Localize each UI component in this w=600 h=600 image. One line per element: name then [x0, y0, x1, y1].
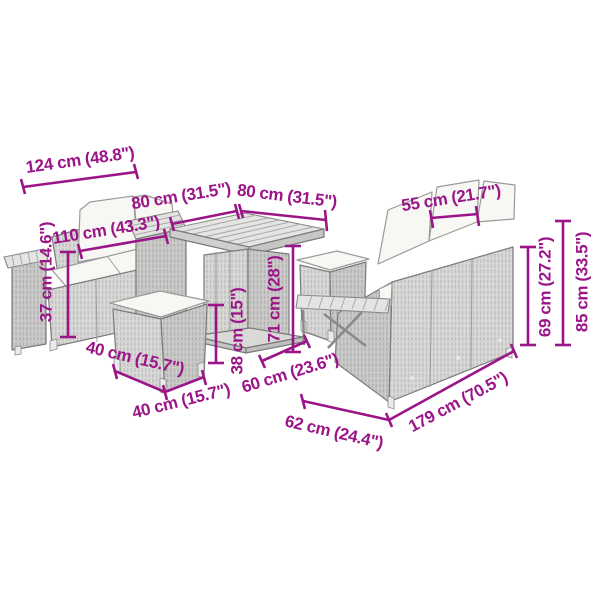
shelf-post	[303, 310, 304, 345]
dim-label-60: 60 cm (23.6")	[239, 349, 340, 396]
sofa-foot	[15, 346, 21, 355]
dim-label-38: 38 cm (15")	[228, 288, 247, 375]
sofa-foot	[50, 339, 57, 351]
rivet	[410, 376, 414, 380]
dim-label-85: 85 cm (33.5")	[573, 232, 592, 332]
dim-label-37: 37 cm (14.6")	[37, 222, 56, 322]
diagram-canvas: 124 cm (48.8") 110 cm (43.3") 37 cm (14.…	[0, 0, 600, 600]
dim-label-124: 124 cm (48.8")	[25, 143, 136, 177]
dim-55-tick	[476, 206, 479, 226]
dim-label-80-right: 80 cm (31.5")	[236, 180, 338, 211]
rivet	[456, 356, 460, 360]
dimension-diagram: 124 cm (48.8") 110 cm (43.3") 37 cm (14.…	[0, 0, 600, 600]
sofa-foot	[388, 396, 394, 409]
rivet	[498, 338, 502, 342]
dim-60-tick	[259, 355, 265, 368]
dim-label-69: 69 cm (27.2")	[536, 237, 555, 337]
front-stool	[110, 291, 209, 394]
dim-label-71: 71 cm (28")	[265, 256, 284, 343]
dim-label-80-left: 80 cm (31.5")	[130, 179, 232, 213]
dim-label-62: 62 cm (24.4")	[283, 411, 385, 452]
dim-80-right-tick	[325, 210, 327, 231]
